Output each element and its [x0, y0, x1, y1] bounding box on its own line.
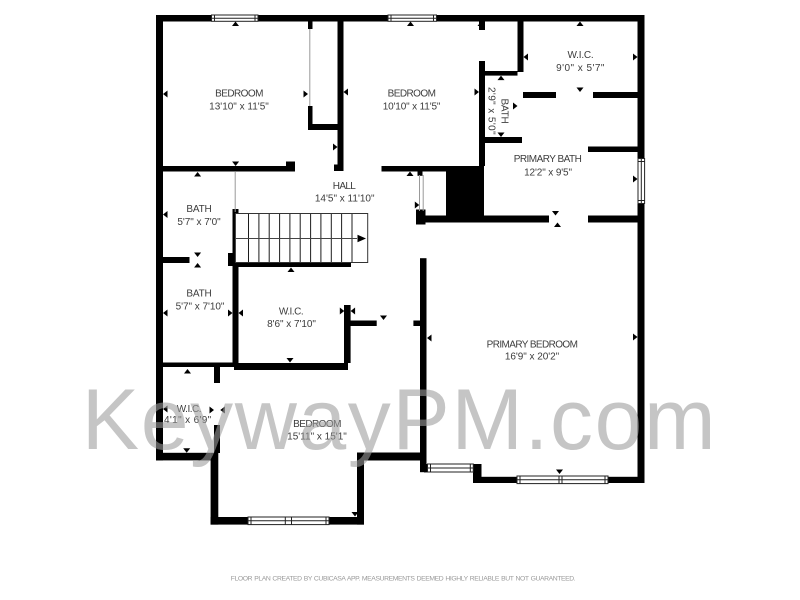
svg-text:BEDROOM: BEDROOM [388, 89, 436, 100]
svg-text:10'10" x 11'5": 10'10" x 11'5" [383, 102, 441, 113]
svg-text:W.I.C.: W.I.C. [567, 50, 593, 61]
svg-text:KeywayPM.com: KeywayPM.com [82, 372, 717, 468]
svg-text:BEDROOM: BEDROOM [215, 89, 263, 100]
svg-text:2'9" x 5'0": 2'9" x 5'0" [486, 87, 497, 135]
svg-text:PRIMARY BEDROOM: PRIMARY BEDROOM [487, 340, 578, 351]
svg-text:PRIMARY BATH: PRIMARY BATH [514, 154, 582, 165]
svg-text:9'0" x 5'7": 9'0" x 5'7" [556, 63, 605, 74]
svg-text:5'7" x 7'0": 5'7" x 7'0" [177, 217, 221, 228]
svg-text:12'2" x 9'5": 12'2" x 9'5" [524, 167, 572, 178]
svg-text:5'7" x 7'10": 5'7" x 7'10" [176, 302, 225, 313]
svg-text:W.I.C.: W.I.C. [279, 307, 303, 318]
svg-text:BATH: BATH [186, 204, 211, 215]
svg-text:16'9" x 20'2": 16'9" x 20'2" [505, 352, 560, 363]
svg-text:8'6" x 7'10": 8'6" x 7'10" [267, 319, 316, 330]
svg-text:BATH: BATH [499, 98, 510, 123]
svg-text:13'10" x 11'5": 13'10" x 11'5" [209, 102, 269, 113]
svg-text:HALL: HALL [333, 181, 357, 192]
svg-text:14'5" x 11'10": 14'5" x 11'10" [315, 193, 375, 204]
svg-text:FLOOR PLAN CREATED BY CUBICASA: FLOOR PLAN CREATED BY CUBICASA APP. MEAS… [231, 576, 576, 583]
svg-text:BATH: BATH [186, 289, 211, 300]
